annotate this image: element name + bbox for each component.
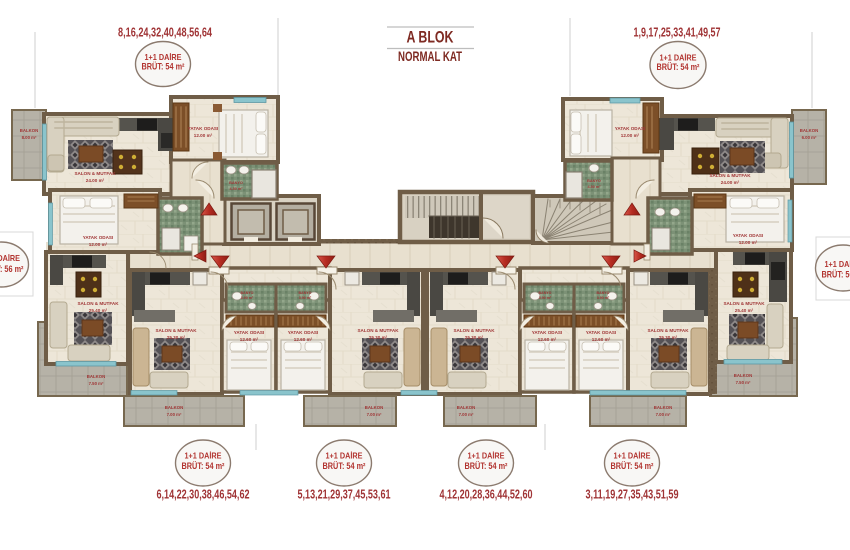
svg-text:3.90 m²: 3.90 m² <box>597 296 610 300</box>
svg-text:12.60 m²: 12.60 m² <box>240 337 259 342</box>
svg-text:BRÜT: 54 m²: BRÜT: 54 m² <box>323 461 366 471</box>
svg-text:SALON & MUTFAK: SALON & MUTFAK <box>453 328 495 333</box>
svg-text:12.00 m²: 12.00 m² <box>739 240 758 245</box>
svg-text:BALKON: BALKON <box>734 373 752 378</box>
svg-text:6.00 m²: 6.00 m² <box>802 135 817 140</box>
svg-text:BANYO: BANYO <box>299 291 312 295</box>
svg-text:4.50 m²: 4.50 m² <box>587 185 601 189</box>
svg-text:BRÜT: 54 m²: BRÜT: 54 m² <box>657 62 700 72</box>
svg-text:BRÜT: 56 m²: BRÜT: 56 m² <box>822 270 850 280</box>
svg-text:BANYO: BANYO <box>241 291 254 295</box>
svg-text:BANYO: BANYO <box>539 291 552 295</box>
svg-text:25.30 m²: 25.30 m² <box>369 335 388 340</box>
svg-text:BANYO: BANYO <box>597 291 610 295</box>
svg-text:BANYO: BANYO <box>229 181 243 185</box>
svg-text:1+1 DAİRE: 1+1 DAİRE <box>185 451 222 461</box>
svg-text:SALON & MUTFAK: SALON & MUTFAK <box>155 328 197 333</box>
svg-text:YATAK ODASI: YATAK ODASI <box>288 330 319 335</box>
svg-text:BALKON: BALKON <box>654 405 672 410</box>
svg-text:1,9,17,25,33,41,49,57: 1,9,17,25,33,41,49,57 <box>634 26 721 40</box>
svg-text:YATAK ODASI: YATAK ODASI <box>234 330 265 335</box>
svg-text:YATAK ODASI: YATAK ODASI <box>586 330 617 335</box>
svg-text:7.00 m²: 7.00 m² <box>656 412 671 417</box>
svg-text:25.30 m²: 25.30 m² <box>167 335 186 340</box>
svg-text:7.00 m²: 7.00 m² <box>167 412 182 417</box>
svg-text:3.90 m²: 3.90 m² <box>241 296 254 300</box>
svg-text:YATAK ODASI: YATAK ODASI <box>83 235 114 240</box>
svg-text:YATAK ODASI: YATAK ODASI <box>615 126 646 131</box>
svg-text:BALKON: BALKON <box>365 405 383 410</box>
svg-text:4,12,20,28,36,44,52,60: 4,12,20,28,36,44,52,60 <box>440 488 533 502</box>
svg-text:YATAK ODASI: YATAK ODASI <box>733 233 764 238</box>
svg-text:BRÜT: 54 m²: BRÜT: 54 m² <box>465 461 508 471</box>
svg-text:NORMAL KAT: NORMAL KAT <box>398 48 462 64</box>
svg-text:BRÜT: 54 m²: BRÜT: 54 m² <box>182 461 225 471</box>
svg-text:SALON & MUTFAK: SALON & MUTFAK <box>647 328 689 333</box>
svg-text:BALKON: BALKON <box>165 405 183 410</box>
svg-text:12.00 m²: 12.00 m² <box>89 242 108 247</box>
svg-text:8,16,24,32,40,48,56,64: 8,16,24,32,40,48,56,64 <box>118 26 212 40</box>
svg-text:5,13,21,29,37,45,53,61: 5,13,21,29,37,45,53,61 <box>298 488 391 502</box>
svg-text:1+1 DAİRE: 1+1 DAİRE <box>468 451 505 461</box>
svg-text:7.00 m²: 7.00 m² <box>459 412 474 417</box>
svg-text:24.00 m²: 24.00 m² <box>721 180 740 185</box>
svg-text:12.60 m²: 12.60 m² <box>294 337 313 342</box>
svg-text:SALON & MUTFAK: SALON & MUTFAK <box>357 328 399 333</box>
svg-text:12.00 m²: 12.00 m² <box>194 133 213 138</box>
svg-text:25.30 m²: 25.30 m² <box>659 335 678 340</box>
svg-text:BALKON: BALKON <box>800 128 818 133</box>
svg-text:3.90 m²: 3.90 m² <box>299 296 312 300</box>
svg-text:3.90 m²: 3.90 m² <box>539 296 552 300</box>
svg-text:12.60 m²: 12.60 m² <box>592 337 611 342</box>
svg-text:25.40 m²: 25.40 m² <box>735 308 754 313</box>
svg-text:7.50 m²: 7.50 m² <box>89 381 104 386</box>
svg-text:SALON & MUTFAK: SALON & MUTFAK <box>74 171 116 176</box>
svg-text:BALKON: BALKON <box>87 374 105 379</box>
svg-text:12.00 m²: 12.00 m² <box>621 133 640 138</box>
svg-text:24.00 m²: 24.00 m² <box>86 178 105 183</box>
svg-text:BRÜT: 56 m²: BRÜT: 56 m² <box>0 264 24 274</box>
svg-text:7.00 m²: 7.00 m² <box>367 412 382 417</box>
svg-text:SALON & MUTFAK: SALON & MUTFAK <box>723 301 765 306</box>
svg-text:SALON & MUTFAK: SALON & MUTFAK <box>77 301 119 306</box>
svg-text:3,11,19,27,35,43,51,59: 3,11,19,27,35,43,51,59 <box>586 488 679 502</box>
svg-text:12.60 m²: 12.60 m² <box>538 337 557 342</box>
svg-text:BALKON: BALKON <box>20 128 38 133</box>
svg-text:BRÜT: 54 m²: BRÜT: 54 m² <box>611 461 654 471</box>
svg-text:YATAK ODASI: YATAK ODASI <box>532 330 563 335</box>
svg-text:BALKON: BALKON <box>457 405 475 410</box>
svg-text:1+1 DAİRE: 1+1 DAİRE <box>614 451 651 461</box>
svg-text:1+1 DAİRE: 1+1 DAİRE <box>145 52 182 62</box>
svg-text:7.50 m²: 7.50 m² <box>736 380 751 385</box>
svg-text:BANYO: BANYO <box>587 179 601 183</box>
svg-text:4.50 m²: 4.50 m² <box>229 187 243 191</box>
svg-text:SALON & MUTFAK: SALON & MUTFAK <box>709 173 751 178</box>
svg-text:YATAK ODASI: YATAK ODASI <box>188 126 219 131</box>
svg-text:BRÜT: 54 m²: BRÜT: 54 m² <box>142 62 185 72</box>
svg-text:6,14,22,30,38,46,54,62: 6,14,22,30,38,46,54,62 <box>157 488 250 502</box>
svg-text:1+1 DAİRE: 1+1 DAİRE <box>825 259 850 269</box>
svg-text:1+1 DAİRE: 1+1 DAİRE <box>660 53 697 63</box>
svg-text:A BLOK: A BLOK <box>407 29 454 47</box>
svg-text:8.00 m²: 8.00 m² <box>22 135 37 140</box>
svg-text:1+1 DAİRE: 1+1 DAİRE <box>0 253 20 263</box>
svg-text:25.30 m²: 25.30 m² <box>465 335 484 340</box>
svg-text:1+1 DAİRE: 1+1 DAİRE <box>326 451 363 461</box>
